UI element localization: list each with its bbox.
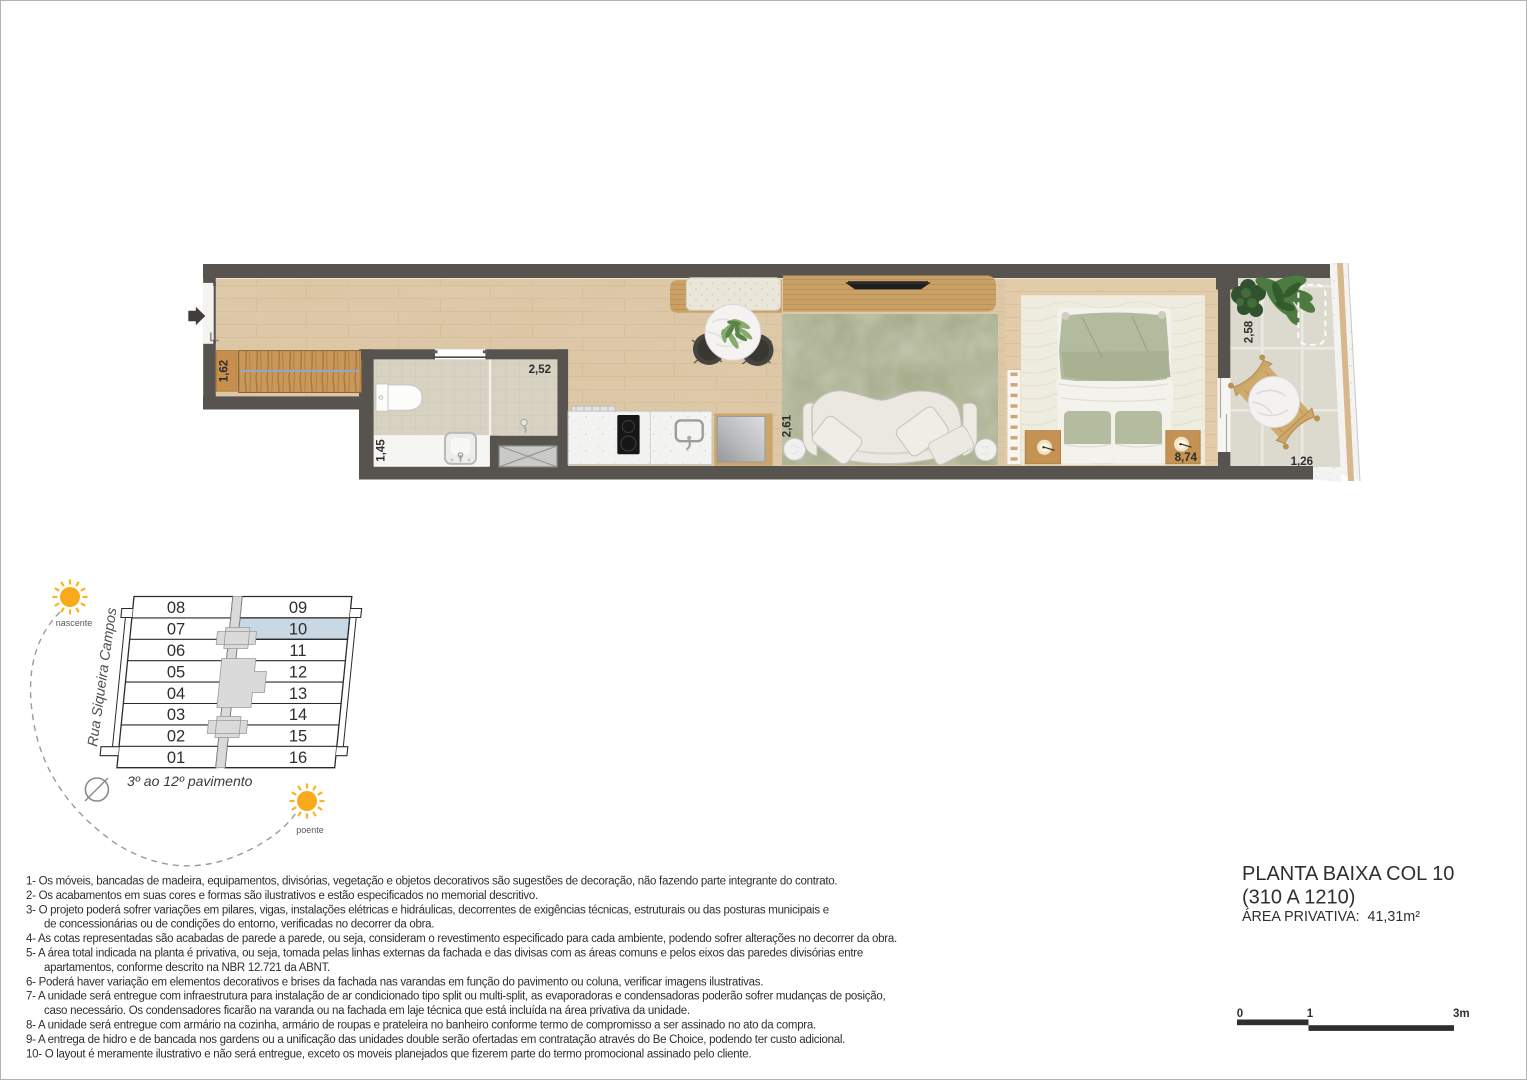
svg-text:5- A área total indicada na pl: 5- A área total indicada na planta é pri…	[26, 948, 863, 960]
svg-text:07: 07	[167, 621, 185, 639]
svg-text:2,61: 2,61	[782, 414, 794, 437]
svg-text:13: 13	[289, 685, 307, 703]
svg-text:02: 02	[167, 728, 185, 746]
svg-text:de concessionárias ou de condi: de concessionárias ou de condições do en…	[44, 919, 434, 931]
svg-text:01: 01	[167, 749, 185, 767]
svg-text:3m: 3m	[1453, 1008, 1470, 1020]
svg-text:1,45: 1,45	[376, 439, 388, 462]
svg-text:9- A entrega de hidro e de ban: 9- A entrega de hidro e de bancada nos g…	[26, 1034, 845, 1046]
svg-text:05: 05	[167, 663, 185, 681]
svg-text:15: 15	[289, 728, 307, 746]
svg-text:11: 11	[289, 642, 306, 660]
svg-text:2,58: 2,58	[1244, 320, 1256, 343]
svg-text:2- Os acabamentos em suas core: 2- Os acabamentos em suas cores e formas…	[26, 890, 538, 902]
svg-text:ÁREA PRIVATIVA: 41,31m²: ÁREA PRIVATIVA: 41,31m²	[1242, 908, 1420, 925]
svg-text:08: 08	[167, 599, 185, 617]
svg-text:(310 A 1210): (310 A 1210)	[1242, 887, 1355, 909]
svg-text:1: 1	[1307, 1008, 1314, 1020]
svg-text:09: 09	[289, 599, 307, 617]
svg-text:1,26: 1,26	[1291, 456, 1313, 468]
svg-text:2,52: 2,52	[529, 364, 551, 376]
svg-text:14: 14	[289, 706, 307, 724]
svg-text:poente: poente	[296, 825, 324, 835]
svg-text:caso necessário. Os condensado: caso necessário. Os condensadores ficarã…	[44, 1005, 690, 1017]
svg-text:1- Os móveis, bancadas de made: 1- Os móveis, bancadas de madeira, equip…	[26, 876, 837, 888]
svg-text:0: 0	[1237, 1008, 1243, 1020]
svg-text:7- A unidade será entregue com: 7- A unidade será entregue com infraestr…	[26, 991, 885, 1003]
svg-text:6- Poderá haver variação em el: 6- Poderá haver variação em elementos de…	[26, 976, 763, 988]
svg-text:04: 04	[167, 685, 185, 703]
svg-text:8- A unidade será entregue com: 8- A unidade será entregue com armário n…	[26, 1020, 816, 1032]
svg-text:12: 12	[289, 663, 307, 681]
svg-text:16: 16	[289, 749, 307, 767]
svg-text:1,62: 1,62	[219, 360, 231, 382]
svg-text:apartamentos, conforme descrit: apartamentos, conforme descrito na NBR 1…	[44, 962, 330, 974]
svg-text:nascente: nascente	[56, 618, 93, 628]
svg-text:10- O layout é meramente ilust: 10- O layout é meramente ilustrativo e n…	[26, 1048, 751, 1060]
svg-text:3º ao 12º pavimento: 3º ao 12º pavimento	[127, 773, 253, 789]
svg-text:8,74: 8,74	[1175, 452, 1198, 464]
svg-text:03: 03	[167, 706, 185, 724]
svg-text:10: 10	[289, 621, 307, 639]
svg-text:06: 06	[167, 642, 185, 660]
svg-text:4- As cotas representadas são: 4- As cotas representadas são acabadas d…	[26, 933, 897, 945]
svg-text:PLANTA BAIXA COL 10: PLANTA BAIXA COL 10	[1242, 863, 1454, 885]
svg-text:3- O projeto poderá sofrer var: 3- O projeto poderá sofrer variações em …	[26, 904, 829, 916]
